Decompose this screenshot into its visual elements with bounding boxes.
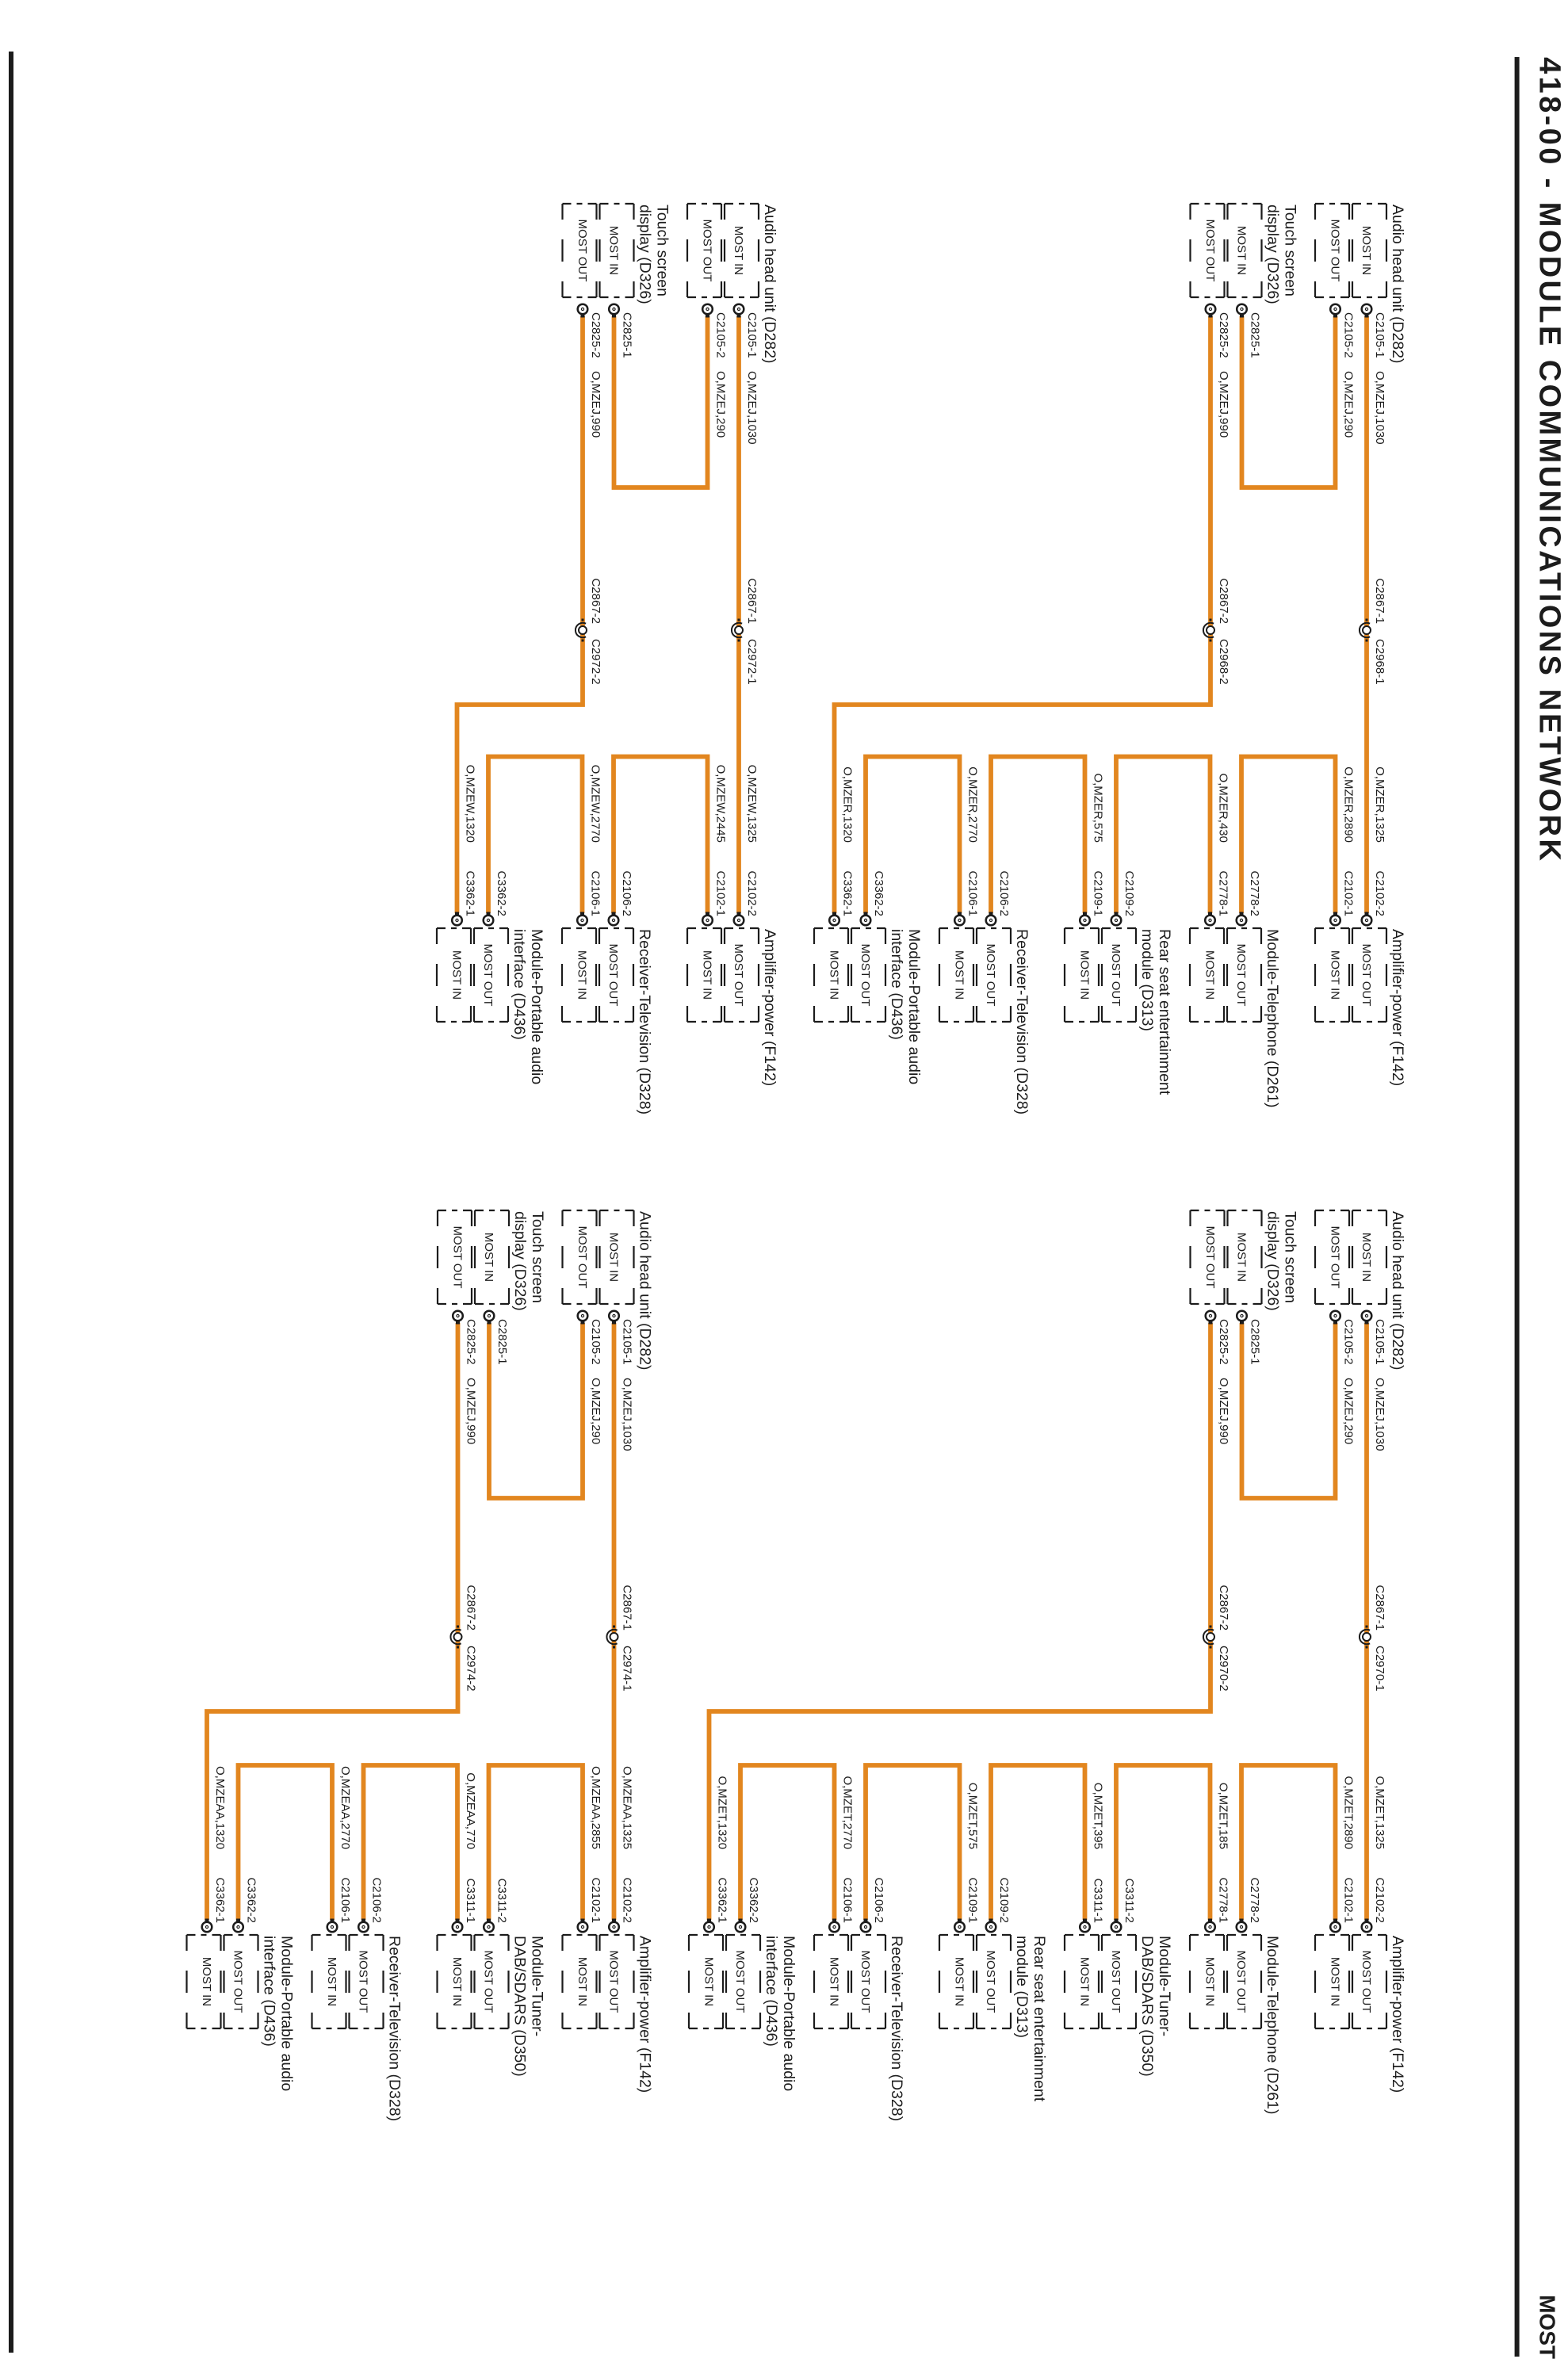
svg-text:display (D326): display (D326) (1264, 205, 1282, 304)
svg-text:C2970-2: C2970-2 (1217, 1646, 1230, 1692)
svg-text:C2105-2: C2105-2 (1342, 1319, 1356, 1365)
svg-text:O,MZER,1325: O,MZER,1325 (1373, 767, 1386, 843)
svg-text:Module-Tuner-: Module-Tuner- (1156, 1936, 1173, 2036)
svg-text:MOST IN: MOST IN (1235, 226, 1249, 275)
svg-text:MOST OUT: MOST OUT (607, 1951, 621, 2013)
svg-text:C2105-1: C2105-1 (1373, 1319, 1386, 1365)
svg-text:C2825-2: C2825-2 (1217, 312, 1230, 358)
svg-text:C2972-2: C2972-2 (589, 639, 602, 685)
svg-text:O,MZET,1325: O,MZET,1325 (1373, 1776, 1386, 1849)
svg-text:O,MZER,2770: O,MZER,2770 (966, 767, 980, 843)
svg-text:MOST IN: MOST IN (576, 950, 589, 1000)
svg-text:C2867-2: C2867-2 (1217, 1585, 1230, 1631)
svg-text:C2867-2: C2867-2 (589, 578, 602, 624)
svg-text:MOST IN: MOST IN (828, 1957, 841, 2006)
svg-text:C2105-1: C2105-1 (621, 1319, 634, 1365)
svg-text:C2102-2: C2102-2 (745, 870, 759, 916)
svg-text:MOST: MOST (1535, 2295, 1560, 2359)
svg-text:C2105-2: C2105-2 (714, 312, 728, 358)
svg-text:O,MZET,2890: O,MZET,2890 (1342, 1776, 1356, 1849)
svg-text:MOST OUT: MOST OUT (1329, 1226, 1342, 1289)
svg-text:O,MZER,575: O,MZER,575 (1092, 773, 1105, 843)
svg-text:C2825-1: C2825-1 (495, 1319, 509, 1365)
svg-text:MOST OUT: MOST OUT (859, 944, 872, 1007)
svg-text:O,MZEJ,990: O,MZEJ,990 (1217, 1378, 1230, 1444)
svg-text:C2102-2: C2102-2 (1373, 1877, 1386, 1923)
svg-text:Amplifier-power (F142): Amplifier-power (F142) (1389, 1936, 1406, 2093)
svg-text:DAB/SDARS (D350): DAB/SDARS (D350) (511, 1936, 529, 2077)
svg-text:MOST IN: MOST IN (953, 1957, 966, 2006)
svg-text:C2102-2: C2102-2 (1373, 870, 1386, 916)
svg-text:O,MZEJ,990: O,MZEJ,990 (589, 371, 602, 438)
svg-text:C2105-1: C2105-1 (745, 312, 759, 358)
svg-text:C2106-1: C2106-1 (589, 870, 602, 916)
svg-text:C2106-2: C2106-2 (620, 870, 633, 916)
svg-text:O,MZEJ,290: O,MZEJ,290 (589, 1378, 602, 1444)
svg-text:C3362-2: C3362-2 (495, 870, 508, 916)
svg-text:C2778-1: C2778-1 (1217, 1877, 1230, 1923)
svg-text:MOST OUT: MOST OUT (1203, 220, 1217, 282)
svg-text:C2972-1: C2972-1 (745, 639, 759, 685)
svg-text:C2109-2: C2109-2 (997, 1877, 1011, 1923)
svg-text:C3362-1: C3362-1 (716, 1877, 729, 1923)
svg-text:MOST OUT: MOST OUT (1109, 1951, 1122, 2013)
svg-text:Receiver-Television (D328): Receiver-Television (D328) (888, 1936, 905, 2121)
svg-text:MOST IN: MOST IN (482, 1233, 495, 1282)
svg-text:MOST IN: MOST IN (325, 1957, 338, 2006)
svg-text:C3311-1: C3311-1 (464, 1879, 477, 1923)
svg-text:C3362-2: C3362-2 (872, 870, 885, 916)
svg-text:O,MZEW,1325: O,MZEW,1325 (745, 765, 759, 843)
svg-text:MOST IN: MOST IN (1078, 1957, 1092, 2006)
svg-text:418-00 - MODULE COMMUNICATIONS: 418-00 - MODULE COMMUNICATIONS NETWORK (1533, 57, 1566, 863)
svg-text:MOST OUT: MOST OUT (576, 220, 589, 282)
svg-text:MOST OUT: MOST OUT (1329, 220, 1342, 282)
svg-text:Receiver-Television (D328): Receiver-Television (D328) (636, 929, 653, 1114)
svg-text:MOST OUT: MOST OUT (859, 1951, 872, 2013)
svg-text:Module-Telephone (D261): Module-Telephone (D261) (1264, 929, 1281, 1107)
svg-text:DAB/SDARS (D350): DAB/SDARS (D350) (1138, 1936, 1156, 2077)
svg-text:O,MZET,395: O,MZET,395 (1092, 1783, 1105, 1849)
svg-text:C2102-1: C2102-1 (714, 870, 728, 916)
svg-text:MOST IN: MOST IN (1235, 1233, 1249, 1282)
svg-text:Amplifier-power (F142): Amplifier-power (F142) (1389, 929, 1406, 1086)
svg-text:O,MZEJ,990: O,MZEJ,990 (1217, 371, 1230, 438)
svg-text:display (D326): display (D326) (637, 205, 654, 304)
svg-text:C3311-2: C3311-2 (1122, 1879, 1136, 1923)
svg-text:MOST IN: MOST IN (1360, 1233, 1373, 1282)
svg-text:C2825-2: C2825-2 (589, 312, 602, 358)
svg-text:MOST OUT: MOST OUT (481, 944, 495, 1007)
svg-text:O,MZEAA,2855: O,MZEAA,2855 (589, 1766, 602, 1849)
svg-text:C3362-2: C3362-2 (245, 1877, 258, 1923)
svg-text:MOST OUT: MOST OUT (984, 944, 997, 1007)
svg-text:MOST OUT: MOST OUT (733, 1951, 747, 2013)
svg-text:MOST IN: MOST IN (607, 1233, 621, 1282)
svg-text:MOST OUT: MOST OUT (357, 1951, 370, 2013)
svg-text:Touch screen: Touch screen (1282, 1211, 1299, 1303)
svg-text:C2778-2: C2778-2 (1248, 1877, 1261, 1923)
svg-text:C2825-2: C2825-2 (1217, 1319, 1230, 1365)
svg-text:C2968-2: C2968-2 (1217, 639, 1230, 685)
svg-text:O,MZEAA,1320: O,MZEAA,1320 (213, 1766, 227, 1849)
svg-text:MOST IN: MOST IN (732, 226, 745, 275)
svg-text:C2825-1: C2825-1 (621, 312, 634, 358)
svg-text:C3362-1: C3362-1 (464, 870, 477, 916)
svg-text:O,MZEW,2445: O,MZEW,2445 (714, 765, 728, 843)
svg-text:MOST OUT: MOST OUT (606, 944, 620, 1007)
svg-text:MOST IN: MOST IN (702, 1957, 716, 2006)
svg-text:C2970-1: C2970-1 (1373, 1646, 1386, 1692)
svg-text:Audio head unit (D282): Audio head unit (D282) (1389, 1211, 1406, 1371)
svg-text:MOST OUT: MOST OUT (984, 1951, 997, 2013)
svg-text:O,MZER,1320: O,MZER,1320 (841, 767, 855, 843)
svg-text:Audio head unit (D282): Audio head unit (D282) (637, 1211, 654, 1371)
svg-text:Touch screen: Touch screen (654, 205, 671, 296)
svg-text:O,MZEW,1320: O,MZEW,1320 (464, 765, 477, 843)
svg-text:O,MZET,1320: O,MZET,1320 (716, 1776, 729, 1849)
svg-text:MOST IN: MOST IN (200, 1957, 213, 2006)
svg-text:Module-Tuner-: Module-Tuner- (529, 1936, 546, 2036)
svg-text:O,MZEJ,290: O,MZEJ,290 (714, 371, 728, 438)
svg-text:MOST OUT: MOST OUT (732, 944, 745, 1007)
svg-text:C2867-2: C2867-2 (465, 1585, 478, 1631)
svg-text:MOST OUT: MOST OUT (1109, 944, 1122, 1007)
svg-text:C2106-1: C2106-1 (841, 1877, 855, 1923)
svg-text:C2106-2: C2106-2 (370, 1877, 384, 1923)
svg-text:module (D313): module (D313) (1138, 929, 1156, 1031)
svg-text:interface (D436): interface (D436) (888, 929, 905, 1040)
svg-text:MOST OUT: MOST OUT (451, 1226, 465, 1289)
svg-text:C3311-2: C3311-2 (495, 1879, 509, 1923)
svg-text:C3362-2: C3362-2 (747, 1877, 760, 1923)
svg-text:Rear seat entertainment: Rear seat entertainment (1156, 929, 1173, 1095)
svg-text:O,MZEJ,1030: O,MZEJ,1030 (621, 1378, 634, 1451)
svg-text:C2867-1: C2867-1 (1373, 578, 1386, 624)
svg-text:Rear seat entertainment: Rear seat entertainment (1031, 1936, 1048, 2102)
svg-text:Touch screen: Touch screen (1282, 205, 1299, 296)
svg-text:O,MZEAA,770: O,MZEAA,770 (464, 1772, 477, 1849)
svg-text:MOST IN: MOST IN (828, 950, 841, 1000)
svg-text:O,MZET,2770: O,MZET,2770 (841, 1776, 855, 1849)
svg-text:Module-Portable audio: Module-Portable audio (905, 929, 923, 1084)
svg-text:MOST IN: MOST IN (1078, 950, 1092, 1000)
svg-text:O,MZEJ,1030: O,MZEJ,1030 (1373, 371, 1386, 445)
svg-text:C2102-1: C2102-1 (589, 1877, 602, 1923)
svg-text:interface (D436): interface (D436) (511, 929, 528, 1040)
svg-text:C2825-1: C2825-1 (1249, 312, 1262, 358)
svg-text:C3362-1: C3362-1 (213, 1877, 227, 1923)
svg-text:Receiver-Television (D328): Receiver-Television (D328) (386, 1936, 403, 2121)
svg-text:Module-Portable audio: Module-Portable audio (780, 1936, 797, 2091)
svg-text:MOST IN: MOST IN (450, 950, 464, 1000)
svg-text:MOST OUT: MOST OUT (231, 1951, 245, 2013)
svg-text:O,MZEJ,990: O,MZEJ,990 (465, 1378, 478, 1444)
svg-text:MOST OUT: MOST OUT (1360, 1951, 1373, 2013)
svg-text:C2106-1: C2106-1 (966, 870, 980, 916)
svg-text:C2974-1: C2974-1 (621, 1646, 634, 1692)
svg-text:C2867-1: C2867-1 (745, 578, 759, 624)
svg-text:C2105-2: C2105-2 (589, 1319, 602, 1365)
svg-text:MOST OUT: MOST OUT (1360, 944, 1373, 1007)
svg-text:C2106-2: C2106-2 (997, 870, 1011, 916)
svg-text:C2106-1: C2106-1 (338, 1877, 352, 1923)
svg-text:MOST IN: MOST IN (607, 226, 621, 275)
svg-text:Audio head unit (D282): Audio head unit (D282) (761, 205, 778, 364)
svg-text:C2102-1: C2102-1 (1342, 870, 1356, 916)
svg-text:C2102-1: C2102-1 (1342, 1877, 1356, 1923)
svg-text:MOST IN: MOST IN (701, 950, 714, 1000)
svg-text:MOST OUT: MOST OUT (1234, 944, 1248, 1007)
svg-text:Amplifier-power (F142): Amplifier-power (F142) (761, 929, 778, 1086)
svg-text:O,MZEJ,1030: O,MZEJ,1030 (1373, 1378, 1386, 1451)
svg-text:O,MZEW,2770: O,MZEW,2770 (589, 765, 602, 843)
svg-text:O,MZET,575: O,MZET,575 (966, 1783, 980, 1849)
svg-text:O,MZER,430: O,MZER,430 (1217, 773, 1230, 843)
svg-text:C2867-2: C2867-2 (1217, 578, 1230, 624)
svg-text:interface (D436): interface (D436) (261, 1936, 278, 2047)
svg-text:MOST IN: MOST IN (1329, 1957, 1342, 2006)
svg-text:C3362-1: C3362-1 (841, 870, 855, 916)
svg-text:Audio head unit (D282): Audio head unit (D282) (1389, 205, 1406, 364)
svg-text:O,MZEAA,2770: O,MZEAA,2770 (338, 1766, 352, 1849)
svg-text:C2825-2: C2825-2 (465, 1319, 478, 1365)
svg-text:O,MZEJ,290: O,MZEJ,290 (1342, 1378, 1356, 1444)
svg-text:C2105-2: C2105-2 (1342, 312, 1356, 358)
svg-text:C2106-2: C2106-2 (872, 1877, 885, 1923)
svg-text:O,MZEAA,1325: O,MZEAA,1325 (621, 1766, 634, 1849)
svg-text:C2968-1: C2968-1 (1373, 639, 1386, 685)
svg-text:MOST IN: MOST IN (1329, 950, 1342, 1000)
svg-text:C2102-2: C2102-2 (621, 1877, 634, 1923)
svg-text:Amplifier-power (F142): Amplifier-power (F142) (637, 1936, 654, 2093)
svg-text:MOST IN: MOST IN (1203, 1957, 1217, 2006)
svg-text:C2109-2: C2109-2 (1122, 870, 1136, 916)
svg-text:O,MZER,2890: O,MZER,2890 (1342, 767, 1356, 843)
svg-text:C2867-1: C2867-1 (621, 1585, 634, 1631)
svg-text:O,MZEJ,1030: O,MZEJ,1030 (745, 371, 759, 445)
svg-text:MOST OUT: MOST OUT (1203, 1226, 1217, 1289)
svg-text:C2974-2: C2974-2 (465, 1646, 478, 1692)
svg-text:C2778-1: C2778-1 (1217, 870, 1230, 916)
svg-text:Touch screen: Touch screen (529, 1211, 546, 1303)
svg-text:display (D326): display (D326) (1264, 1211, 1282, 1311)
svg-text:C2109-1: C2109-1 (1092, 870, 1105, 916)
svg-text:Module-Portable audio: Module-Portable audio (278, 1936, 296, 2091)
svg-text:interface (D436): interface (D436) (763, 1936, 780, 2047)
svg-text:MOST OUT: MOST OUT (576, 1226, 589, 1289)
svg-text:module (D313): module (D313) (1013, 1936, 1031, 2038)
svg-text:C2109-1: C2109-1 (966, 1877, 980, 1923)
svg-text:O,MZEJ,290: O,MZEJ,290 (1342, 371, 1356, 438)
svg-text:MOST IN: MOST IN (576, 1957, 589, 2006)
svg-text:C2825-1: C2825-1 (1249, 1319, 1262, 1365)
svg-text:MOST IN: MOST IN (1203, 950, 1217, 1000)
svg-text:MOST IN: MOST IN (450, 1957, 464, 2006)
svg-text:MOST IN: MOST IN (953, 950, 966, 1000)
svg-text:MOST OUT: MOST OUT (482, 1951, 495, 2013)
svg-text:MOST OUT: MOST OUT (701, 220, 714, 282)
svg-text:MOST OUT: MOST OUT (1234, 1951, 1248, 2013)
svg-text:C2105-1: C2105-1 (1373, 312, 1386, 358)
svg-text:display (D326): display (D326) (511, 1211, 529, 1311)
svg-text:C2778-2: C2778-2 (1248, 870, 1261, 916)
svg-text:Module-Portable audio: Module-Portable audio (528, 929, 545, 1084)
svg-text:C2867-1: C2867-1 (1373, 1585, 1386, 1631)
svg-text:C3311-1: C3311-1 (1092, 1879, 1105, 1923)
svg-text:MOST IN: MOST IN (1360, 226, 1373, 275)
svg-text:Module-Telephone (D261): Module-Telephone (D261) (1264, 1936, 1281, 2114)
svg-text:O,MZET,185: O,MZET,185 (1217, 1783, 1230, 1849)
svg-text:Receiver-Television (D328): Receiver-Television (D328) (1013, 929, 1031, 1114)
